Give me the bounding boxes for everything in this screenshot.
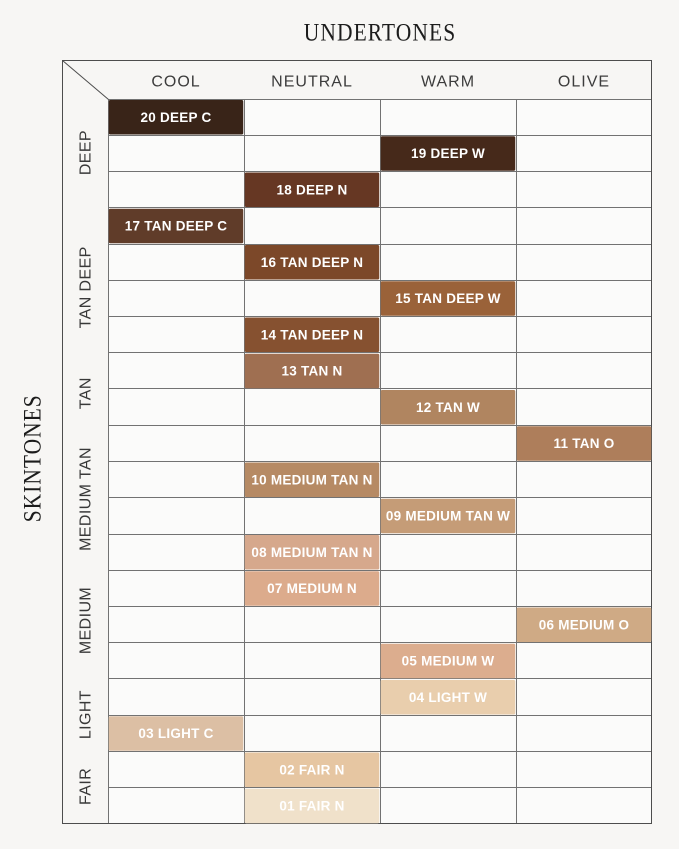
- svg-text:19 DEEP W: 19 DEEP W: [411, 146, 485, 161]
- svg-text:TAN: TAN: [78, 377, 95, 409]
- svg-text:UNDERTONES: UNDERTONES: [304, 19, 457, 47]
- svg-text:20 DEEP C: 20 DEEP C: [140, 110, 211, 125]
- svg-text:12 TAN W: 12 TAN W: [416, 400, 480, 415]
- svg-text:18 DEEP N: 18 DEEP N: [276, 182, 347, 197]
- svg-text:16 TAN DEEP N: 16 TAN DEEP N: [261, 255, 364, 270]
- svg-text:06 MEDIUM O: 06 MEDIUM O: [539, 617, 630, 632]
- svg-text:15 TAN DEEP W: 15 TAN DEEP W: [395, 291, 501, 306]
- svg-text:11 TAN O: 11 TAN O: [553, 436, 614, 451]
- svg-text:07 MEDIUM N: 07 MEDIUM N: [267, 581, 357, 596]
- svg-text:MEDIUM TAN: MEDIUM TAN: [78, 447, 95, 551]
- svg-text:01 FAIR N: 01 FAIR N: [279, 799, 344, 814]
- svg-text:TAN DEEP: TAN DEEP: [78, 246, 95, 328]
- svg-text:17 TAN DEEP C: 17 TAN DEEP C: [125, 219, 228, 234]
- svg-text:DEEP: DEEP: [78, 130, 95, 175]
- svg-text:SKINTONES: SKINTONES: [19, 394, 47, 522]
- svg-text:02 FAIR N: 02 FAIR N: [279, 762, 344, 777]
- svg-text:MEDIUM: MEDIUM: [78, 587, 95, 654]
- svg-text:13 TAN N: 13 TAN N: [281, 364, 342, 379]
- svg-text:04 LIGHT W: 04 LIGHT W: [409, 690, 487, 705]
- svg-text:03 LIGHT C: 03 LIGHT C: [138, 726, 213, 741]
- svg-text:09 MEDIUM TAN W: 09 MEDIUM TAN W: [386, 509, 510, 524]
- svg-text:WARM: WARM: [421, 74, 475, 91]
- svg-text:05 MEDIUM W: 05 MEDIUM W: [402, 654, 495, 669]
- svg-text:NEUTRAL: NEUTRAL: [271, 74, 353, 91]
- svg-text:08 MEDIUM TAN N: 08 MEDIUM TAN N: [251, 545, 372, 560]
- svg-text:FAIR: FAIR: [78, 768, 95, 805]
- svg-text:OLIVE: OLIVE: [558, 74, 610, 91]
- svg-text:LIGHT: LIGHT: [78, 690, 95, 739]
- svg-text:10 MEDIUM TAN N: 10 MEDIUM TAN N: [251, 472, 372, 487]
- svg-text:COOL: COOL: [151, 74, 200, 91]
- svg-text:14 TAN DEEP N: 14 TAN DEEP N: [261, 327, 364, 342]
